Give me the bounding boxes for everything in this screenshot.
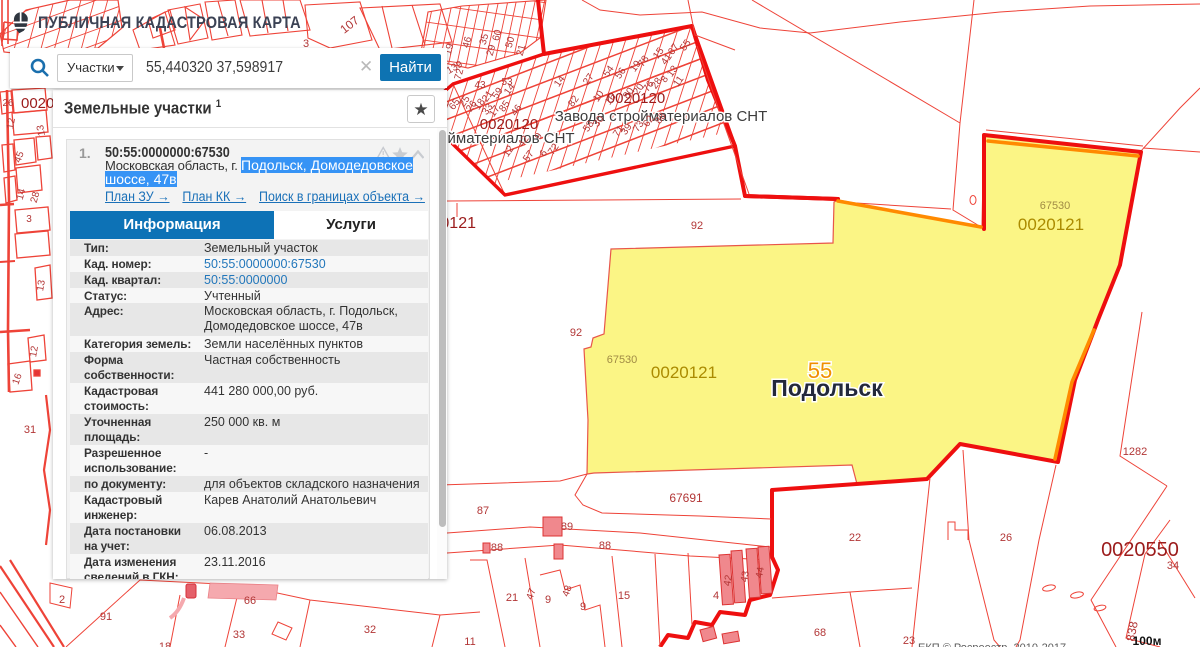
svg-text:43: 43 bbox=[474, 80, 486, 91]
svg-text:0020121: 0020121 bbox=[651, 363, 717, 382]
svg-text:Подольск: Подольск bbox=[771, 375, 883, 401]
svg-text:89: 89 bbox=[561, 521, 573, 533]
svg-text:11: 11 bbox=[464, 636, 475, 647]
svg-text:67530: 67530 bbox=[607, 354, 638, 366]
svg-text:15: 15 bbox=[618, 590, 630, 602]
svg-text:23: 23 bbox=[903, 635, 915, 647]
svg-text:1282: 1282 bbox=[1123, 446, 1147, 458]
svg-text:22: 22 bbox=[849, 532, 861, 544]
svg-text:3: 3 bbox=[26, 214, 32, 225]
svg-text:26: 26 bbox=[2, 98, 14, 109]
svg-text:31: 31 bbox=[24, 424, 36, 436]
svg-text:21: 21 bbox=[506, 592, 518, 604]
svg-text:91: 91 bbox=[100, 611, 112, 623]
svg-text:92: 92 bbox=[570, 327, 582, 339]
svg-text:92: 92 bbox=[691, 220, 703, 232]
svg-text:33: 33 bbox=[233, 629, 245, 641]
svg-text:ЕКП © Росреестр, 2010-2017: ЕКП © Росреестр, 2010-2017 bbox=[918, 642, 1066, 647]
svg-text:26: 26 bbox=[1000, 532, 1012, 544]
svg-text:66: 66 bbox=[244, 595, 256, 607]
svg-text:87: 87 bbox=[477, 505, 489, 517]
svg-text:0020121: 0020121 bbox=[1018, 215, 1084, 234]
svg-text:68: 68 bbox=[814, 627, 826, 639]
svg-text:9: 9 bbox=[580, 601, 586, 613]
svg-text:4: 4 bbox=[713, 590, 719, 602]
svg-text:100м: 100м bbox=[1133, 634, 1162, 647]
svg-text:32: 32 bbox=[364, 624, 376, 636]
svg-text:2: 2 bbox=[59, 594, 65, 606]
svg-text:67691: 67691 bbox=[669, 491, 703, 505]
svg-text:0020550: 0020550 bbox=[1101, 539, 1179, 561]
svg-text:88: 88 bbox=[599, 540, 611, 552]
svg-text:18: 18 bbox=[159, 641, 171, 647]
svg-text:67530: 67530 bbox=[1040, 200, 1071, 212]
svg-text:88: 88 bbox=[491, 542, 503, 554]
svg-text:9: 9 bbox=[545, 594, 551, 606]
svg-text:34: 34 bbox=[1167, 560, 1179, 572]
